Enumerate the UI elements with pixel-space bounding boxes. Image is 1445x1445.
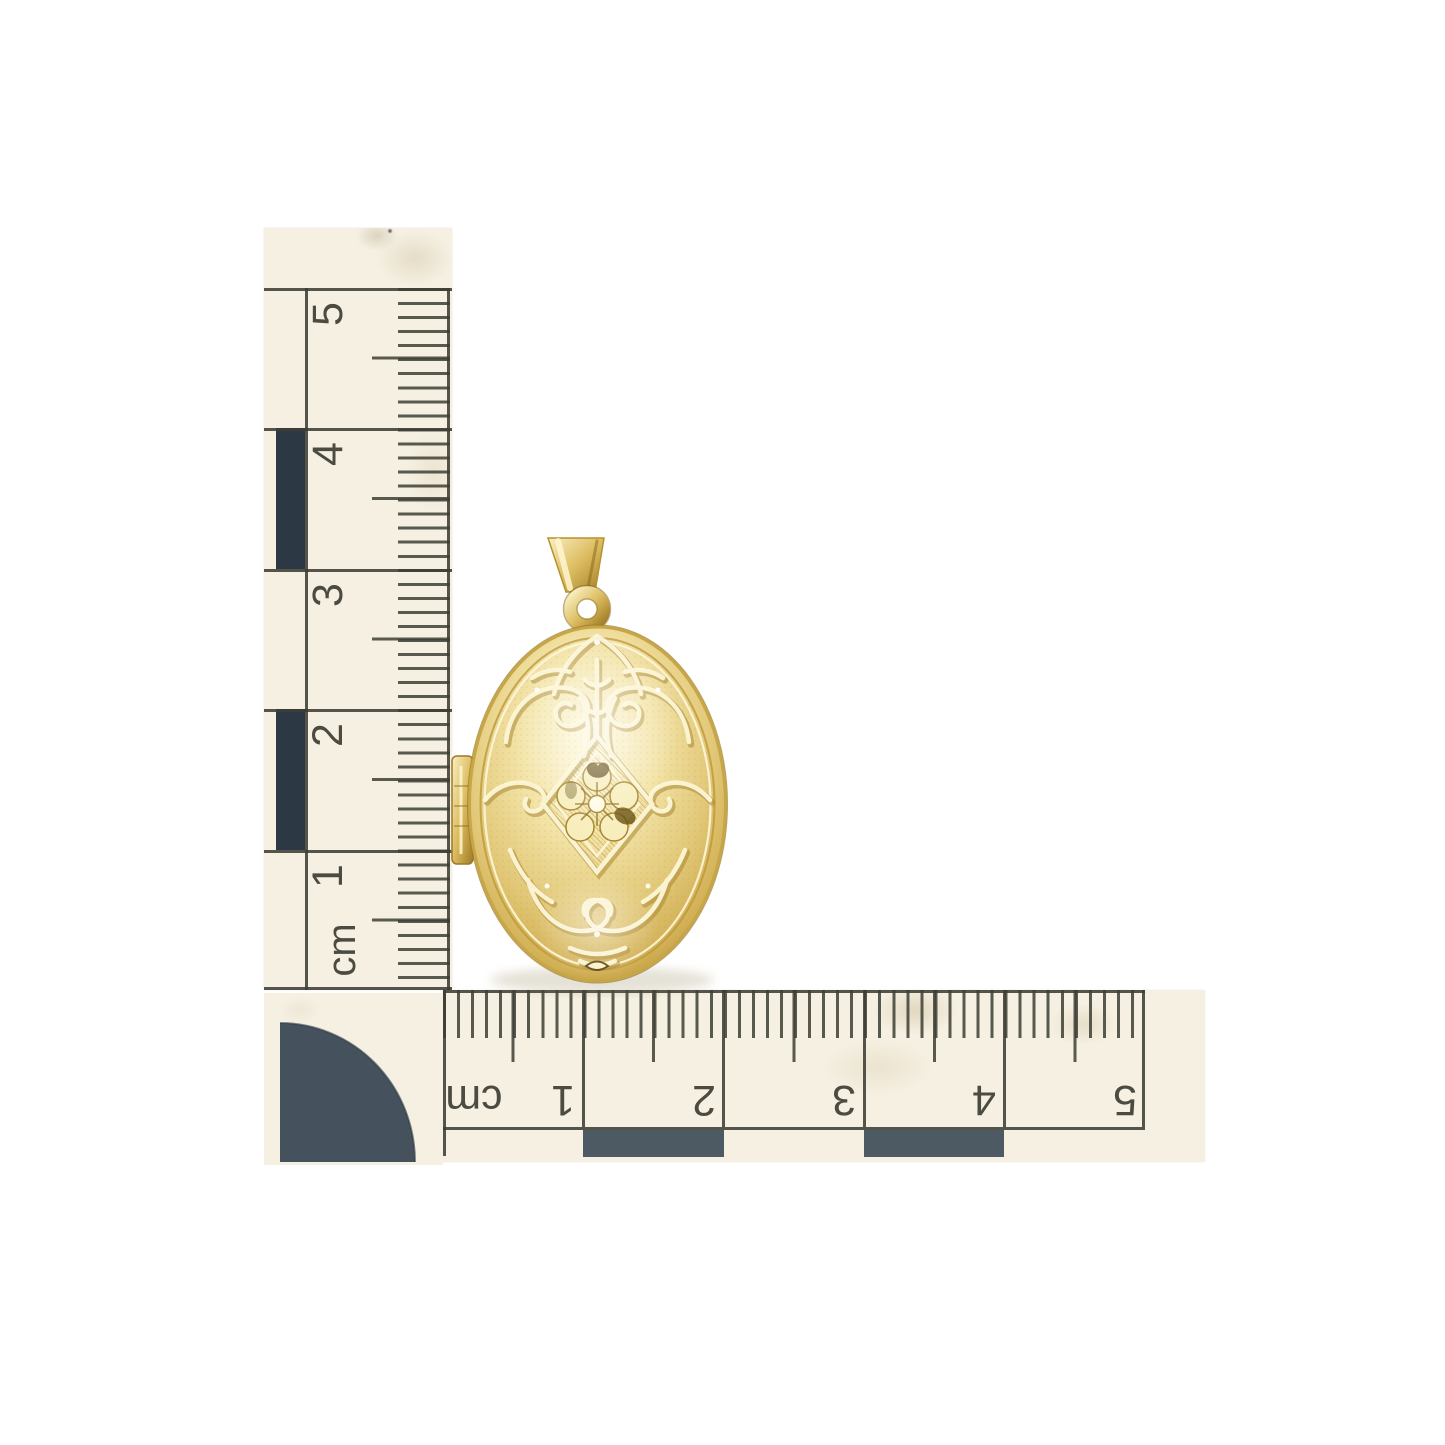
- ruler-number: 4: [966, 1082, 1002, 1118]
- ruler-number: 2: [310, 717, 346, 753]
- ruler-number: 1: [310, 858, 346, 894]
- scale-block: [864, 1130, 1004, 1157]
- cm-line: [264, 850, 452, 853]
- scale-block: [276, 709, 305, 850]
- cm-line: [264, 288, 452, 291]
- ruler-number: 3: [310, 577, 346, 613]
- scale-block: [583, 1130, 724, 1157]
- ruler-unit-label: cm: [456, 1082, 492, 1118]
- quarter-circle-marker: [264, 993, 443, 1165]
- cm-line: [264, 709, 452, 712]
- locket-pendant: [440, 528, 760, 998]
- product-photo: 5 4 3 2 1 cm cm 1 2 3 4 5: [0, 0, 1445, 1445]
- ruler-divider-line: [443, 1127, 1145, 1130]
- cm-line: [722, 990, 725, 1127]
- cm-line: [264, 987, 452, 990]
- ruler-number: 2: [686, 1082, 722, 1118]
- ruler-number: 4: [310, 436, 346, 472]
- ruler-number: 1: [545, 1082, 581, 1118]
- bail: [548, 538, 604, 592]
- ruler-number: 5: [310, 296, 346, 332]
- ruler-number: 3: [826, 1082, 862, 1118]
- cm-line: [264, 569, 452, 572]
- vertical-ruler: 5 4 3 2 1 cm: [264, 228, 452, 990]
- ruler-number: 5: [1107, 1082, 1143, 1118]
- horizontal-ruler: cm 1 2 3 4 5: [443, 990, 1205, 1162]
- corner-scale-marker: [264, 993, 443, 1165]
- cm-line: [1003, 990, 1006, 1127]
- cm-line: [863, 990, 866, 1127]
- cm-line: [443, 990, 446, 1156]
- cm-line: [264, 428, 452, 431]
- scale-block: [276, 428, 305, 569]
- ruler-unit-label: cm: [324, 918, 360, 982]
- cm-line: [582, 990, 585, 1127]
